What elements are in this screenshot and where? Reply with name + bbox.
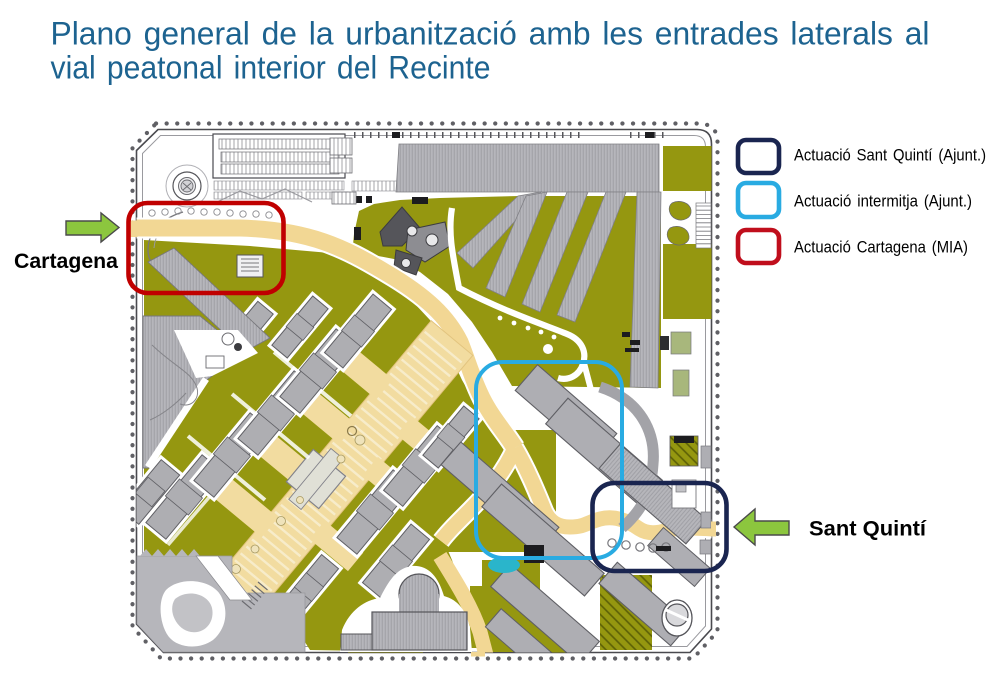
svg-text:Actuació Sant Quintí (Ajunt.): Actuació Sant Quintí (Ajunt.) [794,147,986,165]
svg-text:Actuació intermitja (Ajunt.): Actuació intermitja (Ajunt.) [794,193,972,211]
svg-text:Cartagena: Cartagena [14,250,118,273]
svg-text:vial peatonal interior del Rec: vial peatonal interior del Recinte [51,50,491,86]
svg-text:Plano general de la urbanitzac: Plano general de la urbanització amb les… [51,16,930,52]
svg-text:Actuació Cartagena (MIA): Actuació Cartagena (MIA) [794,239,968,257]
svg-text:Sant Quintí: Sant Quintí [809,518,927,541]
